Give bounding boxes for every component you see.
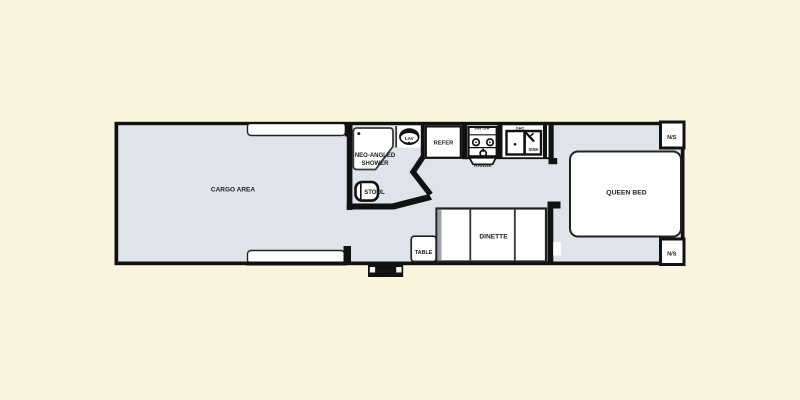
svg-text:RANGE: RANGE [474, 163, 492, 169]
svg-text:N/S: N/S [667, 252, 677, 258]
svg-text:SINK: SINK [528, 147, 538, 152]
svg-text:ENTRY: ENTRY [378, 269, 395, 275]
svg-text:DINETTE: DINETTE [479, 234, 508, 241]
svg-text:LAV: LAV [405, 136, 415, 141]
svg-text:SHOWER: SHOWER [362, 161, 390, 167]
svg-text:QUEEN BED: QUEEN BED [606, 190, 647, 197]
svg-text:TABLE: TABLE [415, 250, 433, 256]
svg-text:STOOL: STOOL [364, 190, 385, 196]
svg-text:N/S: N/S [667, 135, 677, 141]
svg-text:CARGO AREA: CARGO AREA [211, 187, 255, 194]
svg-text:NEO-ANGLED: NEO-ANGLED [355, 153, 396, 159]
svg-text:REFER: REFER [434, 140, 454, 146]
